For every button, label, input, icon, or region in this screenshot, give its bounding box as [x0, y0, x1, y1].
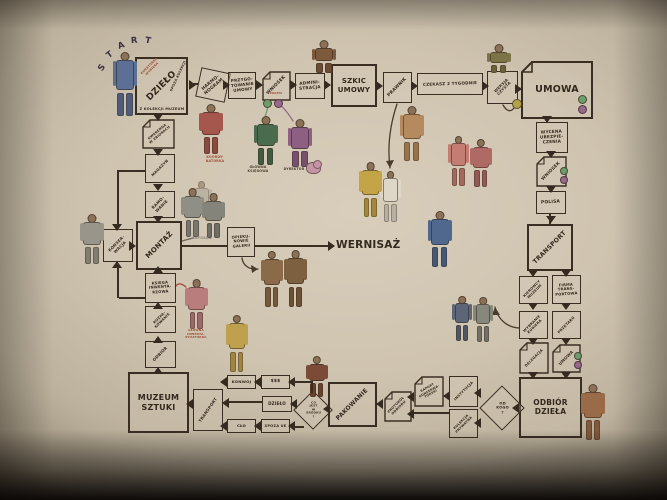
- figure-arm-right: [204, 288, 207, 306]
- figure-brygada-b: [202, 193, 225, 238]
- figure-arm-right: [279, 260, 282, 281]
- figure-arm-right: [488, 148, 491, 165]
- figure-leg-right: [214, 223, 220, 238]
- node-label: CZEKASZ 2 TYGODNIE: [423, 81, 477, 88]
- node-label: OD KOGO ?: [496, 401, 509, 414]
- figure-torso: [205, 201, 222, 221]
- figure-torso: [455, 303, 469, 324]
- node-administracja: ADMINI- STRACJA: [295, 73, 325, 99]
- connector-line-7: [414, 412, 450, 414]
- figure-torso: [184, 196, 201, 218]
- node-odbior: ODBIÓR: [145, 341, 176, 368]
- connector-line-5: [182, 245, 227, 247]
- signature-dot-violet-5: [560, 176, 568, 184]
- arrowhead-31: [129, 241, 136, 251]
- node-label: WERSJA CZYSTA: [493, 78, 512, 97]
- wall-photo: START DZIEŁOHARMO- NOGRAMPRZYGO- TOWANIE…: [0, 0, 667, 500]
- figure-leg-left: [364, 198, 370, 217]
- node-label: CŁO: [237, 424, 246, 429]
- node-label: ODBIÓR: [152, 346, 169, 363]
- figure-leg-left: [204, 137, 210, 154]
- figure-leg-right: [459, 168, 464, 186]
- node-label: KIEROWCY MUZEUM: [523, 279, 545, 301]
- arrowhead-23: [153, 184, 163, 191]
- start-letter: A: [116, 40, 126, 52]
- arrowhead-33: [512, 403, 519, 413]
- figure-arm-left: [199, 113, 202, 131]
- figure-arm-left: [284, 259, 287, 280]
- node-label: KONWÓJ: [232, 380, 252, 385]
- figure-leg-left: [289, 287, 295, 307]
- figure-torso: [403, 114, 421, 139]
- arrowhead-18: [561, 338, 571, 345]
- figure-arm-right: [378, 171, 381, 191]
- start-letter: S: [96, 63, 108, 74]
- node-odbior-dziela: ODBIÓR DZIEŁA: [519, 377, 582, 438]
- node-montaz: MONTAŻ: [136, 221, 182, 270]
- figure-arm-right: [324, 365, 327, 379]
- figure-torso: [116, 60, 135, 90]
- figure-leg-left: [404, 142, 410, 161]
- arrowhead-15: [528, 303, 538, 310]
- figure-arm-left: [254, 125, 258, 143]
- arrowhead-43: [220, 377, 227, 387]
- figure-leg-right: [391, 204, 396, 222]
- figure-leg-left: [230, 352, 236, 372]
- figure-opiekun-a: [261, 251, 283, 307]
- node-label: SPOZA UE: [265, 424, 287, 428]
- figure-leg-left: [117, 93, 124, 116]
- node-label: POLISA: [541, 199, 560, 205]
- figure-arm-left: [181, 197, 184, 215]
- figure-arm-left: [428, 220, 432, 241]
- arrow-prawnik-head: [386, 160, 394, 168]
- node-czekasz-2-tygodnie: CZEKASZ 2 TYGODNIE: [417, 73, 483, 95]
- figure-kurier-a: [452, 296, 472, 341]
- figure-diamond-stander: [306, 356, 328, 397]
- caption-glowna-inwentaryzatorka: GŁÓWNA INWENTA- RYZATORKA: [181, 329, 211, 340]
- figure-torso: [83, 222, 100, 245]
- figure-arm-right: [244, 324, 247, 345]
- arrowhead-36: [443, 391, 450, 401]
- arrowhead-37: [407, 392, 414, 402]
- figure-torso: [287, 258, 304, 285]
- arrowhead-7: [482, 81, 489, 91]
- node-ksiega-inwentarzowa: KSIĘGA INWENTA- RZOWA: [145, 273, 176, 303]
- node-magazyn: MAGAZYN: [145, 154, 175, 183]
- figure-prawnik-walker: [399, 106, 424, 161]
- node-label: $$$: [271, 379, 281, 384]
- document-kwerenda-w-zbiorach: KWERENDA W ZBIORACH: [142, 119, 175, 149]
- arrowhead-39: [376, 399, 383, 409]
- node-muzeum-sztuki: MUZEUM SZTUKI: [128, 372, 189, 433]
- figure-administracja-sitter: [311, 40, 337, 73]
- figure-odbior-helper: [581, 384, 605, 440]
- figure-arm-left: [473, 305, 476, 321]
- figure-leg-left: [432, 247, 438, 267]
- node-label: KONSER- WACJA: [107, 235, 128, 256]
- figure-arm-left: [487, 53, 491, 62]
- figure-wersja-czysta-climber: [486, 44, 511, 73]
- arrowhead-0: [189, 80, 196, 90]
- figure-leg-left: [586, 420, 592, 440]
- node-label: FIRMA TRANS- PORTOWA: [555, 282, 578, 297]
- node-transport-1: TRANSPORT: [527, 224, 573, 271]
- arrowhead-48: [220, 421, 227, 431]
- caption-glowna-ksiegowa: GŁÓWNA KSIĘGOWA: [243, 165, 273, 173]
- figure-arm-left: [113, 61, 117, 85]
- figure-leg-right: [296, 287, 302, 307]
- figure-arm-right: [219, 113, 222, 131]
- figure-arm-left: [288, 128, 292, 145]
- figure-brygada-a: [181, 188, 204, 237]
- figure-leg-left: [477, 326, 482, 342]
- caption-wernisaz: WERNISAŻ: [336, 239, 398, 252]
- caption-z-kolekcji-muzeum: Z KOLEKCJI MUZEUM: [135, 107, 189, 111]
- figure-leg-right: [318, 383, 324, 397]
- node-label: OPIEKU- NOWIE GALERII: [231, 235, 250, 249]
- figure-arm-right: [466, 144, 469, 162]
- arrowhead-44: [290, 399, 297, 409]
- arrowhead-47: [254, 421, 261, 431]
- figure-pink-pair-b: [470, 139, 492, 187]
- connector-line-9: [291, 381, 312, 383]
- start-letter: R: [131, 36, 138, 47]
- figure-arm-right: [420, 115, 424, 135]
- document-raport-konserwatorski: RAPORT KONSERWA- TORSKI: [414, 376, 444, 407]
- arrowhead-34: [474, 388, 481, 398]
- node-szkic-umowy: SZKIC UMOWY: [331, 64, 377, 107]
- node-kierowcy-muzeum: KIEROWCY MUZEUM: [519, 276, 548, 304]
- figure-leg-right: [441, 247, 447, 267]
- figure-torso: [309, 364, 325, 382]
- node-label: PAKOWANIE: [335, 387, 370, 422]
- node-label: INSTYTUCJA: [453, 381, 474, 402]
- figure-leg-left: [85, 247, 91, 264]
- figure-arm-right: [507, 53, 511, 62]
- arrow-wybranie-kuriera-curve: [495, 307, 519, 328]
- figure-torso: [473, 147, 489, 169]
- node-przetarg: PRZETARG: [552, 311, 581, 339]
- figure-leg-right: [238, 352, 244, 372]
- node-label: RAMO- WANIE: [151, 195, 169, 213]
- figure-torso: [188, 287, 205, 310]
- document-delegacja: DELEGACJA: [519, 342, 549, 374]
- figure-leg-left: [491, 65, 497, 73]
- node-label: ADMINI- STRACJA: [299, 80, 321, 92]
- figure-kurier-b: [473, 297, 493, 342]
- figure-arm-right: [601, 393, 604, 414]
- figure-leg-left: [258, 148, 264, 165]
- figure-torso: [202, 112, 219, 135]
- arrow-kurier-head: [492, 307, 500, 315]
- node-konwoj: KONWÓJ: [227, 375, 256, 389]
- arrowhead-49: [186, 399, 193, 409]
- arrowhead-26: [153, 302, 163, 309]
- figure-opiekun-b: [284, 250, 307, 307]
- figure-arm-left: [185, 288, 188, 306]
- node-polisa: POLISA: [536, 191, 566, 214]
- figure-torso: [291, 127, 310, 148]
- signature-dot-violet-3: [578, 105, 587, 114]
- signature-dot-violet-1: [274, 99, 283, 108]
- node-label: DZIEŁO: [268, 402, 286, 407]
- node-label: PRAWNIK: [387, 77, 408, 98]
- figure-leg-left: [474, 170, 480, 187]
- node-label: UMOWA: [535, 84, 579, 95]
- figure-torso: [229, 323, 245, 350]
- figure-torso: [584, 392, 601, 418]
- connector-line-1: [117, 170, 119, 226]
- node-label: MONTAŻ: [144, 230, 174, 260]
- node-label: PRZETARG: [557, 315, 576, 334]
- figure-leg-right: [325, 63, 332, 73]
- figure-arm-right: [490, 305, 493, 321]
- node-label: ODBIÓR DZIEŁA: [533, 399, 567, 417]
- arrowhead-21: [153, 114, 163, 121]
- figure-leg-right: [484, 326, 489, 342]
- arrowhead-12: [546, 216, 556, 223]
- figure-arm-right: [448, 220, 452, 241]
- figure-white-figure: [380, 171, 401, 222]
- figure-leg-right: [594, 420, 600, 440]
- signature-dot-green-2: [578, 95, 587, 104]
- figure-yellow-visitor: [359, 162, 382, 217]
- node-label: HARMO- NOGRAM: [201, 74, 226, 97]
- figure-leg-right: [93, 247, 99, 264]
- node-label: KOLEKCJA PRYWATNA: [453, 413, 474, 434]
- figure-arm-right: [134, 61, 138, 85]
- node-label: TRANSPORT: [532, 229, 568, 265]
- figure-leg-left: [456, 325, 461, 341]
- node-label: WYBRANIE KURIERA: [523, 314, 545, 336]
- signature-dot-green-0: [263, 99, 272, 108]
- signature-dot-yellow-8: [512, 99, 522, 109]
- node-label: PRZYGO- TOWANIE UMOWY: [230, 77, 254, 94]
- node-wybranie-kuriera: WYBRANIE KURIERA: [519, 311, 548, 339]
- figure-koordynatorka: [199, 104, 223, 154]
- node-przygotowanie-umowy: PRZYGO- TOWANIE UMOWY: [228, 72, 256, 99]
- figure-arm-right: [100, 223, 103, 241]
- figure-kuratorka-start: [112, 52, 138, 116]
- caption-koordynatorka: KOORDY- NATORKA: [201, 155, 229, 163]
- arrowhead-20: [561, 372, 571, 379]
- figure-leg-right: [371, 198, 377, 217]
- node-pakowanie: PAKOWANIE: [328, 382, 377, 427]
- connector-line-11: [292, 426, 304, 428]
- arrowhead-5: [376, 81, 383, 91]
- figure-torso: [383, 178, 398, 202]
- connector-line-12: [190, 83, 198, 85]
- arrowhead-28: [153, 367, 163, 374]
- figure-torso: [264, 259, 280, 285]
- arrowhead-22: [153, 149, 163, 156]
- figure-arm-left: [448, 144, 451, 162]
- figure-leg-right: [413, 142, 419, 161]
- arrowhead-40: [323, 404, 330, 414]
- arrow-opiekunowie-curve: [242, 258, 258, 269]
- figure-arm-left: [400, 115, 404, 135]
- figure-leg-right: [126, 93, 133, 116]
- arrowhead-6: [411, 81, 418, 91]
- figure-leg-left: [292, 151, 299, 167]
- signature-dot-green-6: [574, 352, 582, 360]
- node-firma-transportowa: FIRMA TRANS- PORTOWA: [552, 275, 581, 304]
- arrowhead-16: [561, 303, 571, 310]
- figure-leg-right: [482, 170, 488, 187]
- connector-line-3: [117, 264, 119, 298]
- figure-leg-left: [384, 204, 389, 222]
- figure-leg-right: [500, 65, 506, 73]
- document-wniosek-1: WNIOSEK: [262, 71, 291, 101]
- figure-arm-right: [309, 128, 313, 145]
- figure-konserwatorka: [80, 214, 104, 264]
- connector-line-6: [255, 245, 328, 247]
- arrowhead-14: [561, 270, 571, 277]
- arrowhead-3: [290, 80, 297, 90]
- arrowhead-24: [153, 216, 163, 223]
- figure-arm-left: [581, 393, 584, 414]
- figure-torso: [431, 219, 449, 245]
- figure-torso: [257, 124, 275, 146]
- node-label: MUZEUM SZTUKI: [138, 393, 179, 412]
- figure-torso: [451, 143, 466, 166]
- figure-arm-left: [202, 202, 205, 218]
- figure-arm-left: [312, 49, 316, 60]
- node-label: MAGAZYN: [151, 159, 170, 178]
- figure-arm-left: [359, 171, 362, 191]
- figure-arm-right: [221, 202, 224, 218]
- arrowhead-19: [528, 372, 538, 379]
- figure-leg-left: [265, 287, 271, 307]
- figure-arm-left: [470, 148, 473, 165]
- figure-torso: [315, 48, 334, 61]
- figure-glowna-ksiegowa: [253, 116, 278, 165]
- arrowhead-8: [515, 84, 522, 94]
- start-letter: T: [144, 36, 151, 47]
- arrowhead-9: [542, 116, 552, 123]
- arrowhead-17: [528, 338, 538, 345]
- connector-line-4: [119, 297, 145, 299]
- node-clo: CŁO: [227, 419, 256, 433]
- arrowhead-42: [254, 377, 261, 387]
- node-label: WYCENA UBEZPIE- CZENIA: [540, 129, 564, 145]
- figure-arm-left: [452, 304, 455, 320]
- figure-inwentaryzatorka: [185, 279, 208, 329]
- node-opiekunowie-galerii: OPIEKU- NOWIE GALERII: [227, 227, 255, 257]
- arrowhead-35: [474, 418, 481, 428]
- arrow-prawnik-to-figure: [389, 104, 397, 168]
- figure-leg-right: [193, 220, 199, 237]
- figure-arm-right: [274, 125, 278, 143]
- node-label: CO JEST W ŚRODKU ?: [306, 401, 321, 418]
- arrowhead-27: [153, 336, 163, 343]
- caption-dyrektor: DYREKTOR: [279, 167, 309, 171]
- arrowhead-4: [324, 80, 331, 90]
- arrowhead-1: [223, 80, 230, 90]
- figure-teddy-bear: [306, 160, 322, 174]
- figure-leg-left: [452, 168, 457, 186]
- signature-dot-green-4: [560, 167, 568, 175]
- node-rozpakowanie: ROZPA- KOWANIE: [145, 306, 176, 333]
- connector-line-8: [229, 401, 262, 403]
- figure-leg-right: [267, 148, 273, 165]
- figure-torso: [476, 304, 490, 325]
- figure-leg-right: [463, 325, 468, 341]
- figure-arm-left: [80, 223, 83, 241]
- figure-torso: [362, 170, 379, 195]
- node-dzielo-2: DZIEŁO: [262, 396, 292, 412]
- node-prawnik: PRAWNIK: [383, 72, 412, 103]
- figure-arm-right: [469, 304, 472, 320]
- arrowhead-38: [407, 409, 414, 419]
- figure-leg-left: [316, 63, 323, 73]
- node-ramowanie: RAMO- WANIE: [145, 191, 175, 218]
- figure-arm-right: [398, 179, 401, 198]
- arrowhead-11: [546, 186, 556, 193]
- node-label: ROZPA- KOWANIE: [151, 310, 171, 330]
- arrowhead-2: [256, 80, 263, 90]
- figure-torso: [490, 52, 508, 63]
- node-dolary: $$$: [261, 375, 290, 389]
- figure-leg-left: [186, 220, 192, 237]
- arrowhead-45: [222, 398, 229, 408]
- arrowhead-32: [328, 241, 335, 251]
- caption-podpis: PODPIS: [266, 92, 286, 95]
- connector-line-2: [119, 170, 145, 172]
- figure-arm-left: [226, 324, 229, 345]
- arrowhead-10: [546, 151, 556, 158]
- node-wycena-ubezpieczenia: WYCENA UBEZPIE- CZENIA: [536, 122, 568, 153]
- figure-leg-right: [273, 287, 279, 307]
- node-label: SZKIC UMOWY: [338, 77, 370, 94]
- figure-blue-walker: [427, 211, 452, 267]
- arrowhead-25: [153, 266, 163, 273]
- figure-konwoj-stander: [226, 315, 248, 372]
- figure-leg-left: [190, 312, 196, 329]
- figure-pink-pair-a: [448, 136, 469, 186]
- figure-leg-right: [212, 137, 218, 154]
- node-label: TRANSPORT: [198, 397, 218, 423]
- connector-line-0: [549, 214, 551, 224]
- figure-leg-left: [207, 223, 213, 238]
- figure-arm-left: [306, 365, 309, 379]
- arrowhead-13: [528, 270, 538, 277]
- node-transport-2: TRANSPORT: [193, 389, 223, 431]
- figure-arm-right: [303, 259, 306, 280]
- node-spoza-ue: SPOZA UE: [261, 419, 290, 433]
- figure-leg-right: [197, 312, 203, 329]
- figure-arm-right: [333, 49, 337, 60]
- signature-dot-violet-7: [574, 361, 582, 369]
- connector-line-10: [311, 381, 313, 393]
- arrow-opiekunowie-head: [251, 265, 258, 273]
- node-label: KSIĘGA INWENTA- RZOWA: [149, 281, 172, 296]
- figure-arm-left: [261, 260, 264, 281]
